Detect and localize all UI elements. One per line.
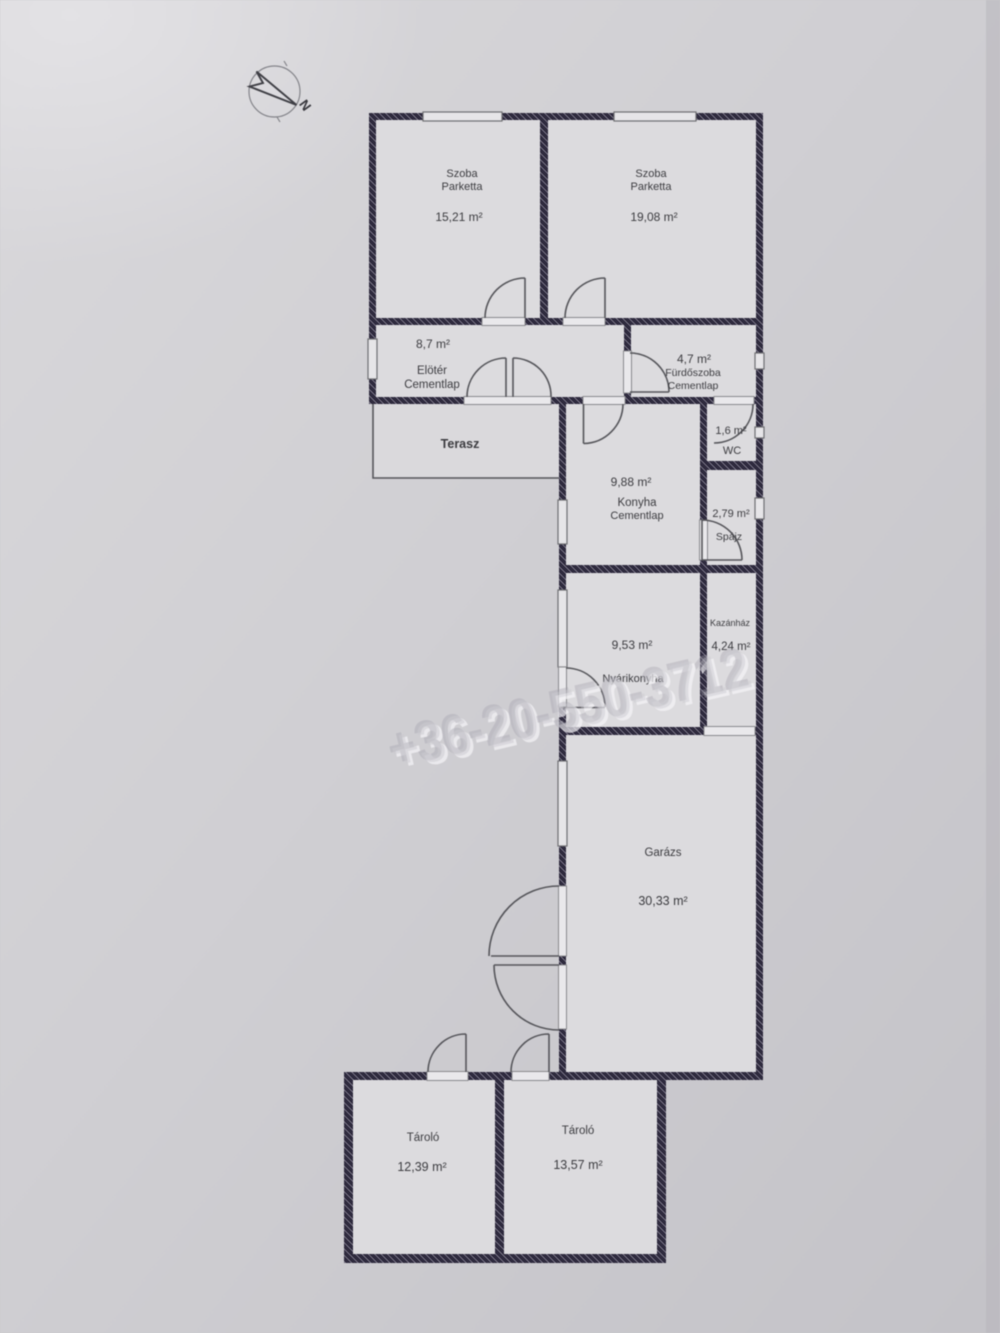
svg-text:Parketta: Parketta bbox=[442, 181, 484, 193]
svg-text:WC: WC bbox=[723, 445, 741, 457]
svg-text:Tároló: Tároló bbox=[407, 1132, 440, 1144]
svg-text:Cementlap: Cementlap bbox=[404, 379, 460, 391]
svg-text:Konyha: Konyha bbox=[617, 497, 657, 509]
svg-text:Spájz: Spájz bbox=[716, 531, 742, 543]
svg-text:12,39 m²: 12,39 m² bbox=[397, 1160, 446, 1174]
svg-text:Tároló: Tároló bbox=[562, 1125, 595, 1137]
svg-text:Cementlap: Cementlap bbox=[610, 510, 663, 522]
svg-text:9,53 m²: 9,53 m² bbox=[612, 638, 653, 652]
svg-text:Kazánház: Kazánház bbox=[710, 618, 751, 628]
svg-text:Elötér: Elötér bbox=[417, 365, 447, 377]
svg-text:13,57 m²: 13,57 m² bbox=[553, 1158, 602, 1172]
svg-text:Terasz: Terasz bbox=[441, 437, 480, 451]
svg-text:15,21 m²: 15,21 m² bbox=[435, 210, 482, 224]
svg-text:Parketta: Parketta bbox=[631, 181, 673, 193]
svg-text:2,79 m²: 2,79 m² bbox=[712, 508, 750, 520]
svg-text:Garázs: Garázs bbox=[644, 847, 681, 859]
svg-text:1,6 m²: 1,6 m² bbox=[715, 425, 747, 437]
svg-text:Szoba: Szoba bbox=[446, 168, 478, 180]
svg-text:19,08 m²: 19,08 m² bbox=[630, 210, 677, 224]
svg-text:Cementlap: Cementlap bbox=[668, 380, 719, 392]
svg-text:9,88 m²: 9,88 m² bbox=[611, 475, 652, 489]
svg-text:30,33 m²: 30,33 m² bbox=[638, 894, 687, 908]
svg-text:Szoba: Szoba bbox=[635, 168, 667, 180]
svg-text:Fürdőszoba: Fürdőszoba bbox=[665, 367, 721, 379]
svg-text:8,7 m²: 8,7 m² bbox=[416, 337, 450, 351]
svg-text:4,7 m²: 4,7 m² bbox=[677, 352, 711, 366]
